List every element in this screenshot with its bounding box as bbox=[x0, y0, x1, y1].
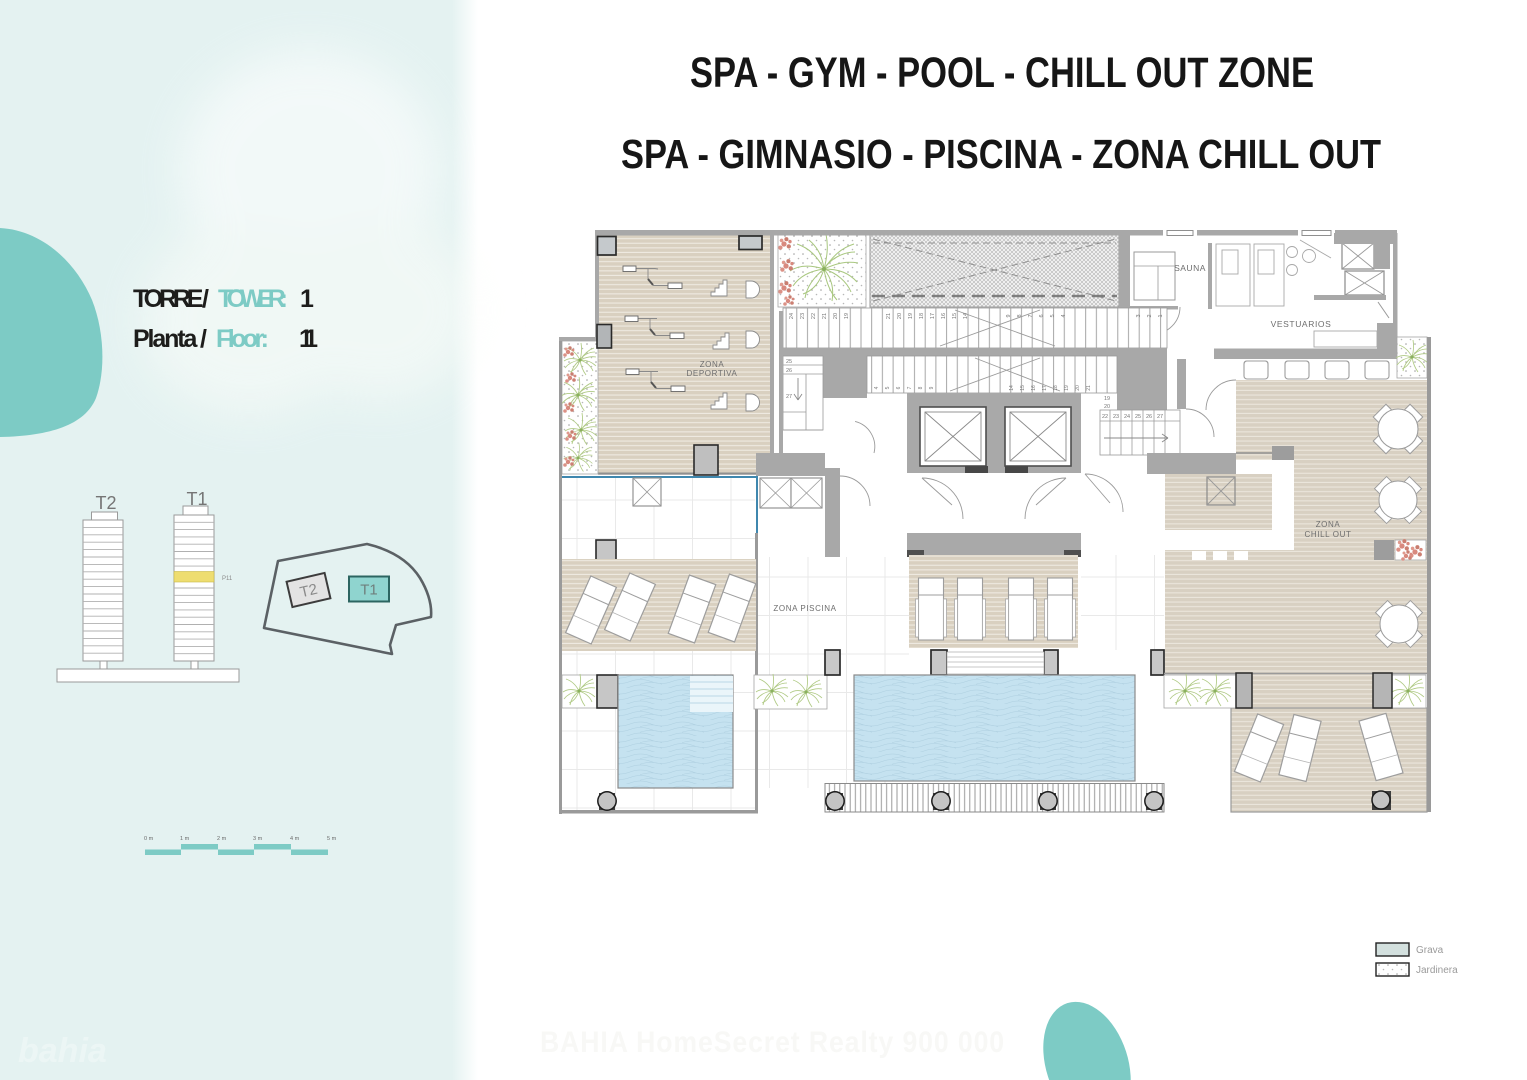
svg-text:4: 4 bbox=[874, 386, 880, 389]
svg-text:20: 20 bbox=[1075, 385, 1081, 391]
svg-text:21: 21 bbox=[886, 313, 892, 319]
svg-text:24: 24 bbox=[1124, 414, 1130, 420]
svg-text:23: 23 bbox=[800, 313, 806, 319]
svg-text:Floor:: Floor: bbox=[216, 325, 269, 353]
svg-text:27: 27 bbox=[1157, 414, 1163, 420]
svg-text:Planta /: Planta / bbox=[133, 325, 207, 353]
svg-text:25: 25 bbox=[786, 359, 792, 365]
svg-text:20: 20 bbox=[833, 313, 839, 319]
svg-text:16: 16 bbox=[1031, 385, 1037, 391]
svg-text:6: 6 bbox=[1039, 314, 1045, 317]
svg-text:21: 21 bbox=[822, 313, 828, 319]
svg-text:BAHIA HomeSecret Realty 900: BAHIA HomeSecret Realty 900 000 bbox=[540, 1026, 1005, 1059]
svg-text:2 m: 2 m bbox=[217, 836, 227, 842]
svg-text:19: 19 bbox=[908, 313, 914, 319]
svg-text:18: 18 bbox=[919, 313, 925, 319]
svg-text:T2: T2 bbox=[95, 493, 116, 513]
svg-text:23: 23 bbox=[1113, 414, 1119, 420]
svg-text:25: 25 bbox=[1135, 414, 1141, 420]
svg-text:ZONA PISCINA: ZONA PISCINA bbox=[773, 604, 836, 613]
svg-text:T1: T1 bbox=[360, 582, 378, 599]
svg-text:ZONA: ZONA bbox=[700, 360, 725, 369]
svg-text:SAUNA: SAUNA bbox=[1174, 263, 1206, 273]
svg-text:SPA - GYM - POOL - CHILL OUT Z: SPA - GYM - POOL - CHILL OUT ZONE bbox=[690, 49, 1314, 97]
svg-text:3: 3 bbox=[1136, 314, 1142, 317]
svg-text:5: 5 bbox=[885, 386, 891, 389]
svg-text:1: 1 bbox=[300, 285, 314, 313]
svg-text:1: 1 bbox=[1158, 314, 1164, 317]
svg-text:TOWER:: TOWER: bbox=[218, 285, 288, 313]
svg-text:CHILL OUT: CHILL OUT bbox=[1305, 530, 1352, 539]
svg-text:18: 18 bbox=[1053, 385, 1059, 391]
svg-text:17: 17 bbox=[1042, 385, 1048, 391]
svg-text:7: 7 bbox=[907, 386, 913, 389]
svg-text:TORRE /: TORRE / bbox=[133, 285, 209, 313]
svg-text:9: 9 bbox=[929, 386, 935, 389]
svg-text:4 m: 4 m bbox=[290, 836, 300, 842]
svg-text:22: 22 bbox=[811, 313, 817, 319]
svg-text:15: 15 bbox=[1020, 385, 1026, 391]
svg-text:3 m: 3 m bbox=[253, 836, 263, 842]
svg-text:ZONA: ZONA bbox=[1316, 520, 1341, 529]
svg-text:22: 22 bbox=[1102, 414, 1108, 420]
svg-text:19: 19 bbox=[1064, 385, 1070, 391]
svg-text:Jardinera: Jardinera bbox=[1416, 965, 1458, 976]
svg-text:0 m: 0 m bbox=[144, 836, 154, 842]
svg-text:17: 17 bbox=[930, 313, 936, 319]
svg-text:1 m: 1 m bbox=[180, 836, 190, 842]
svg-text:14: 14 bbox=[1009, 385, 1015, 391]
svg-text:bahia: bahia bbox=[18, 1032, 107, 1070]
svg-text:14: 14 bbox=[963, 313, 969, 319]
svg-text:21: 21 bbox=[1086, 385, 1092, 391]
svg-text:DEPORTIVA: DEPORTIVA bbox=[687, 369, 738, 378]
svg-text:8: 8 bbox=[1017, 314, 1023, 317]
svg-text:P11: P11 bbox=[222, 576, 233, 582]
svg-text:Grava: Grava bbox=[1416, 945, 1444, 956]
svg-text:15: 15 bbox=[952, 313, 958, 319]
svg-text:5 m: 5 m bbox=[327, 836, 337, 842]
svg-text:20: 20 bbox=[1104, 404, 1110, 410]
svg-text:2: 2 bbox=[1147, 314, 1153, 317]
svg-text:SPA - GIMNASIO - PISCINA - ZON: SPA - GIMNASIO - PISCINA - ZONA CHILL OU… bbox=[621, 131, 1381, 177]
svg-text:6: 6 bbox=[896, 386, 902, 389]
svg-text:8: 8 bbox=[918, 386, 924, 389]
svg-text:7: 7 bbox=[1028, 314, 1034, 317]
svg-text:VESTUARIOS: VESTUARIOS bbox=[1271, 319, 1332, 329]
svg-text:19: 19 bbox=[1104, 396, 1110, 402]
svg-text:5: 5 bbox=[1050, 314, 1056, 317]
svg-text:26: 26 bbox=[786, 368, 792, 374]
svg-text:26: 26 bbox=[1146, 414, 1152, 420]
svg-text:16: 16 bbox=[941, 313, 947, 319]
svg-text:24: 24 bbox=[789, 313, 795, 319]
svg-text:20: 20 bbox=[897, 313, 903, 319]
svg-text:19: 19 bbox=[844, 313, 850, 319]
svg-text:27: 27 bbox=[786, 394, 792, 400]
svg-text:9: 9 bbox=[1006, 314, 1012, 317]
svg-text:11: 11 bbox=[299, 325, 318, 353]
svg-text:4: 4 bbox=[1061, 314, 1067, 317]
